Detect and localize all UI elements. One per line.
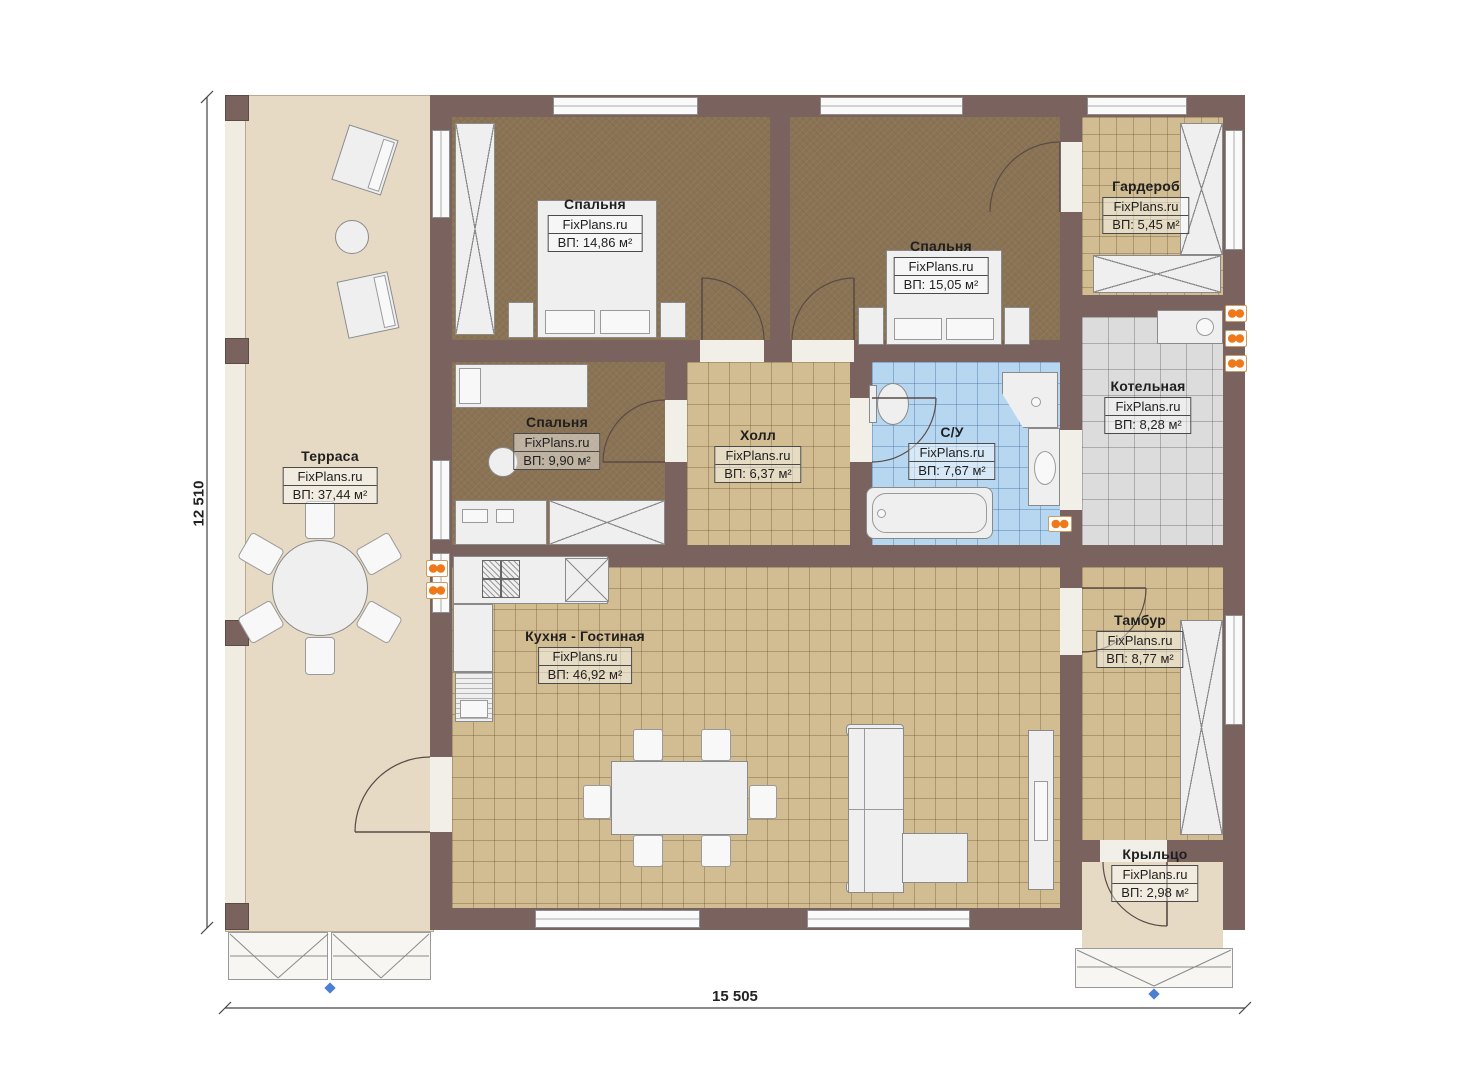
room-label-bedroom2: Спальня FixPlans.ru ВП: 15,05 м² — [894, 238, 989, 294]
sofa-chaise-symbol — [902, 833, 968, 883]
terrace-steps — [228, 932, 328, 980]
radiator-icon — [1225, 355, 1247, 372]
brand-watermark: FixPlans.ru — [549, 216, 642, 234]
door-opening-terrace — [430, 757, 452, 832]
door-opening-tambour — [1060, 588, 1082, 655]
stove-burner-symbol — [482, 560, 501, 579]
boiler-counter-symbol — [1157, 310, 1223, 344]
cabinet-symbol — [1093, 255, 1221, 293]
room-label-porch: Крыльцо FixPlans.ru ВП: 2,98 м² — [1111, 846, 1198, 902]
side-table-symbol — [335, 220, 369, 254]
room-name: Спальня — [513, 414, 600, 430]
room-name: Спальня — [548, 196, 643, 212]
room-label-wardrobe: Гардероб FixPlans.ru ВП: 5,45 м² — [1102, 178, 1189, 234]
radiator-icon — [426, 560, 448, 577]
dimension-width-label: 15 505 — [712, 988, 758, 1005]
room-label-bedroom1: Спальня FixPlans.ru ВП: 14,86 м² — [548, 196, 643, 252]
radiator-icon — [1048, 516, 1072, 532]
radiator-icon — [426, 582, 448, 599]
room-label-bathroom: С/У FixPlans.ru ВП: 7,67 м² — [908, 424, 995, 480]
desk-symbol — [455, 500, 547, 545]
brand-watermark: FixPlans.ru — [715, 447, 800, 465]
pillow-symbol — [545, 310, 595, 334]
toilet-tank-symbol — [869, 385, 877, 423]
round-table-symbol — [272, 540, 368, 636]
room-floor-kitchen-living — [452, 567, 1060, 908]
chair-symbol — [633, 729, 663, 761]
room-area: ВП: 15,05 м² — [895, 276, 988, 293]
stove-burner-symbol — [501, 579, 520, 598]
window — [432, 130, 450, 218]
porch-steps — [1075, 948, 1233, 988]
room-label-hall: Холл FixPlans.ru ВП: 6,37 м² — [714, 427, 801, 483]
fridge-symbol — [455, 672, 493, 722]
door-opening-boiler-room — [1060, 430, 1082, 510]
room-name: Котельная — [1104, 378, 1191, 394]
room-name: Крыльцо — [1111, 846, 1198, 862]
bathtub-symbol — [866, 487, 993, 539]
terrace-column — [225, 903, 249, 930]
sofa-symbol — [848, 728, 904, 893]
dimension-height-label: 12 510 — [190, 481, 207, 527]
single-bed-symbol — [455, 364, 588, 408]
room-label-terrace: Терраса FixPlans.ru ВП: 37,44 м² — [283, 448, 378, 504]
stove-burner-symbol — [501, 560, 520, 579]
brand-watermark: FixPlans.ru — [514, 434, 599, 452]
door-opening-bedroom3 — [665, 400, 687, 462]
room-name: Спальня — [894, 238, 989, 254]
kitchen-sink-symbol — [565, 558, 609, 602]
door-opening-bedroom2 — [792, 340, 854, 362]
toilet-symbol — [877, 383, 909, 425]
brand-watermark: FixPlans.ru — [1103, 198, 1188, 216]
room-area: ВП: 46,92 м² — [539, 666, 632, 683]
room-name: Терраса — [283, 448, 378, 464]
chair-symbol — [305, 501, 335, 539]
room-area: ВП: 14,86 м² — [549, 234, 642, 251]
terrace-edge-rail — [225, 95, 246, 930]
window — [553, 97, 698, 115]
door-opening-wardrobe — [1060, 142, 1082, 212]
room-label-bedroom3: Спальня FixPlans.ru ВП: 9,90 м² — [513, 414, 600, 470]
stove-burner-symbol — [482, 579, 501, 598]
window — [1087, 97, 1187, 115]
room-name: Холл — [714, 427, 801, 443]
chair-symbol — [701, 729, 731, 761]
terrace-column — [225, 95, 249, 121]
brand-watermark: FixPlans.ru — [909, 444, 994, 462]
wardrobe-symbol — [1180, 620, 1223, 835]
axis-marker — [324, 982, 335, 993]
nightstand-symbol — [660, 302, 686, 338]
room-name: Гардероб — [1102, 178, 1189, 194]
room-label-boiler-room: Котельная FixPlans.ru ВП: 8,28 м² — [1104, 378, 1191, 434]
pillow-symbol — [894, 318, 942, 340]
window — [807, 910, 970, 928]
sink-counter-symbol — [1028, 428, 1060, 506]
brand-watermark: FixPlans.ru — [284, 468, 377, 486]
room-label-kitchen-living: Кухня - Гостиная FixPlans.ru ВП: 46,92 м… — [525, 628, 645, 684]
brand-watermark: FixPlans.ru — [539, 648, 632, 666]
brand-watermark: FixPlans.ru — [1112, 866, 1197, 884]
kitchen-counter-symbol — [453, 604, 493, 672]
nightstand-symbol — [858, 307, 884, 345]
room-area: ВП: 6,37 м² — [715, 465, 800, 482]
room-area: ВП: 7,67 м² — [909, 462, 994, 479]
brand-watermark: FixPlans.ru — [1097, 632, 1182, 650]
dining-table-symbol — [611, 761, 748, 835]
chair-symbol — [633, 835, 663, 867]
pillow-symbol — [946, 318, 994, 340]
wardrobe-symbol — [549, 500, 665, 545]
chair-symbol — [701, 835, 731, 867]
nightstand-symbol — [508, 302, 534, 338]
room-name: Кухня - Гостиная — [525, 628, 645, 644]
radiator-icon — [1225, 330, 1247, 347]
window — [1225, 615, 1243, 725]
room-name: Тамбур — [1096, 612, 1183, 628]
nightstand-symbol — [1004, 307, 1030, 345]
room-area: ВП: 8,28 м² — [1105, 416, 1190, 433]
window — [820, 97, 963, 115]
window — [1225, 130, 1243, 250]
wardrobe-symbol — [455, 123, 495, 335]
room-area: ВП: 9,90 м² — [514, 452, 599, 469]
chair-symbol — [749, 785, 777, 819]
room-area: ВП: 2,98 м² — [1112, 884, 1197, 901]
room-area: ВП: 37,44 м² — [284, 486, 377, 503]
room-name: С/У — [908, 424, 995, 440]
door-opening-bedroom1 — [700, 340, 764, 362]
room-area: ВП: 8,77 м² — [1097, 650, 1182, 667]
brand-watermark: FixPlans.ru — [1105, 398, 1190, 416]
floor-plan-canvas: 12 510 15 505 Терраса FixPlans.ru ВП: 37… — [0, 0, 1474, 1080]
room-label-tambour: Тамбур FixPlans.ru ВП: 8,77 м² — [1096, 612, 1183, 668]
room-area: ВП: 5,45 м² — [1103, 216, 1188, 233]
terrace-steps — [331, 932, 431, 980]
window — [535, 910, 700, 928]
chair-symbol — [583, 785, 611, 819]
pillow-symbol — [600, 310, 650, 334]
axis-marker — [1148, 988, 1159, 999]
radiator-icon — [1225, 305, 1247, 322]
window — [432, 460, 450, 540]
tv-stand-symbol — [1028, 730, 1054, 890]
terrace-column — [225, 338, 249, 364]
chair-symbol — [305, 637, 335, 675]
brand-watermark: FixPlans.ru — [895, 258, 988, 276]
